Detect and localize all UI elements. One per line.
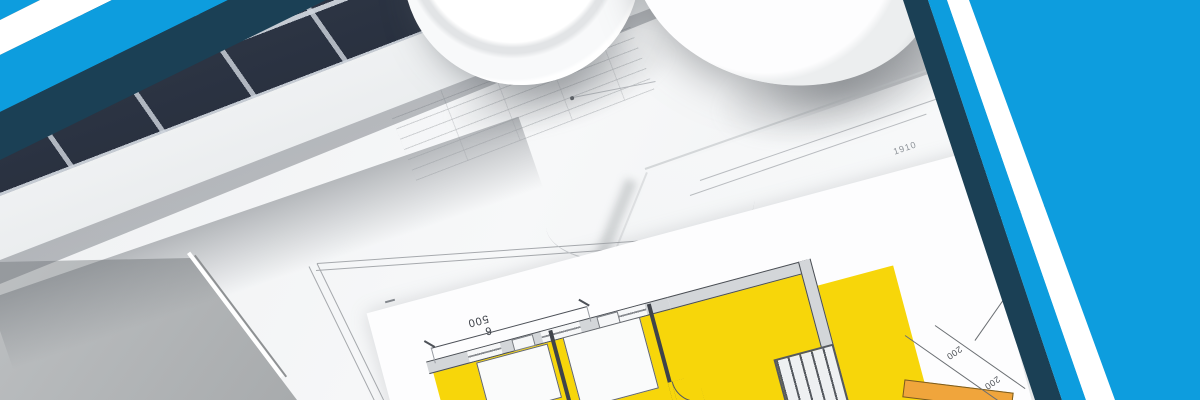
hero-photo-banner: 1910 6 500 <box>0 0 1200 400</box>
ref-mark <box>385 299 395 304</box>
